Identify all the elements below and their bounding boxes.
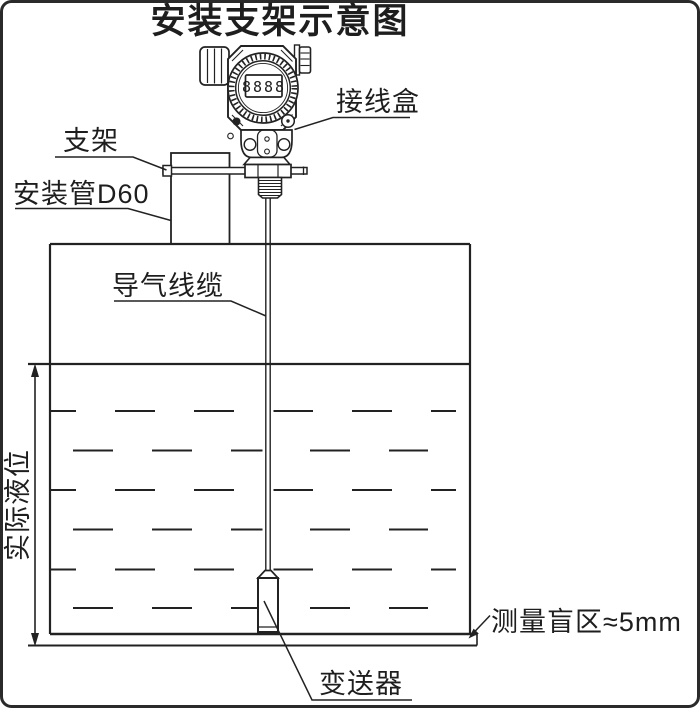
transmitter-label: 变送器 bbox=[319, 669, 403, 699]
neck-pin-icon bbox=[265, 149, 270, 154]
lcd-digits: 8888 bbox=[242, 78, 286, 96]
schematic-page: 安装支架示意图 实际液位 bbox=[0, 0, 700, 708]
tank-outline bbox=[28, 244, 477, 646]
air-cable-label: 导气线缆 bbox=[112, 271, 224, 301]
transmitter-head: 8888 bbox=[200, 45, 311, 198]
small-screw-icon bbox=[228, 133, 234, 139]
screw-icon bbox=[233, 118, 241, 126]
liquid-dashes bbox=[50, 411, 456, 608]
bracket-label: 支架 bbox=[63, 126, 119, 156]
screw-dot-icon bbox=[286, 119, 289, 122]
installation-diagram: 安装支架示意图 实际液位 bbox=[0, 0, 700, 708]
actual-level-label: 实际液位 bbox=[3, 449, 33, 561]
cable-gland-icon bbox=[200, 47, 229, 85]
neck-pin-icon bbox=[265, 137, 269, 141]
air-guide-cable bbox=[263, 198, 274, 625]
bracket-leader bbox=[55, 157, 167, 170]
flare-section bbox=[244, 158, 290, 165]
mounting-pipe-leader bbox=[15, 209, 171, 221]
blind-zone-label: 测量盲区≈5mm bbox=[491, 607, 682, 637]
mounting-pipe-label: 安装管D60 bbox=[13, 179, 150, 209]
junction-box-leader bbox=[295, 118, 411, 130]
neck-bolt-icon bbox=[244, 139, 256, 151]
junction-box-label: 接线盒 bbox=[336, 87, 420, 117]
level-dimension: 实际液位 bbox=[3, 364, 39, 647]
bracket-left-cap bbox=[163, 166, 172, 177]
hex-nut bbox=[245, 165, 291, 178]
arrow-up-icon bbox=[31, 364, 39, 378]
probe-shoulder bbox=[258, 571, 278, 579]
neck-bolt-icon bbox=[278, 139, 290, 151]
arrow-down-icon bbox=[31, 633, 39, 647]
air-cable-leader bbox=[114, 301, 266, 316]
liquid bbox=[28, 364, 470, 608]
mounting-pipe bbox=[171, 153, 230, 244]
diagram-title: 安装支架示意图 bbox=[150, 2, 409, 41]
